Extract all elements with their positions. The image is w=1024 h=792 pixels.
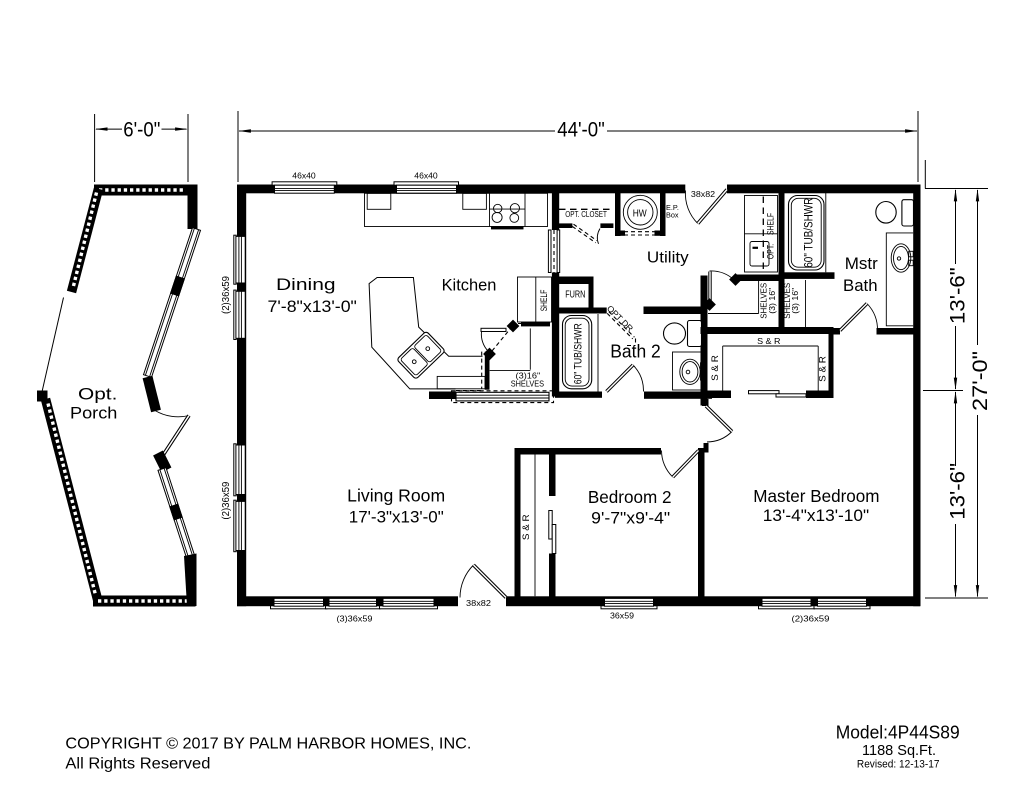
svg-text:Box: Box	[666, 211, 679, 220]
svg-text:17'-3"x13'-0": 17'-3"x13'-0"	[349, 509, 444, 527]
svg-text:SHELF: SHELF	[765, 213, 775, 235]
svg-text:38x82: 38x82	[466, 599, 492, 608]
svg-text:Mstr: Mstr	[845, 255, 879, 273]
svg-text:OPT.: OPT.	[765, 244, 775, 260]
svg-text:13'-4"x13'-10": 13'-4"x13'-10"	[763, 507, 870, 525]
svg-text:36x59: 36x59	[610, 611, 635, 620]
svg-text:Model:4P44S89: Model:4P44S89	[836, 722, 960, 742]
svg-text:(3)36x59: (3)36x59	[337, 615, 374, 624]
svg-text:46x40: 46x40	[414, 171, 438, 180]
svg-text:Bedroom 2: Bedroom 2	[588, 487, 672, 507]
svg-text:7'-8"x13'-0": 7'-8"x13'-0"	[268, 298, 357, 316]
svg-text:COPYRIGHT © 2017 BY PALM HARBO: COPYRIGHT © 2017 BY PALM HARBOR HOMES, I…	[65, 736, 471, 753]
svg-text:Opt.: Opt.	[78, 386, 117, 404]
svg-text:44'-0": 44'-0"	[557, 119, 605, 142]
svg-text:60" TUB/SHWR: 60" TUB/SHWR	[803, 198, 815, 268]
svg-text:46x40: 46x40	[292, 171, 316, 180]
svg-text:OPT. CLOSET: OPT. CLOSET	[565, 210, 607, 219]
svg-text:60" TUB/SHWR: 60" TUB/SHWR	[572, 323, 584, 384]
svg-text:HW: HW	[633, 208, 647, 220]
svg-text:Master Bedroom: Master Bedroom	[753, 486, 879, 506]
svg-text:SHELVES: SHELVES	[511, 378, 545, 388]
svg-text:SHELF: SHELF	[539, 290, 550, 312]
svg-text:1188 Sq.Ft.: 1188 Sq.Ft.	[862, 742, 936, 759]
svg-text:All Rights Reserved: All Rights Reserved	[65, 755, 210, 772]
svg-text:(2)36x59: (2)36x59	[792, 615, 831, 624]
svg-text:S & R: S & R	[817, 356, 828, 382]
svg-text:(3) 16": (3) 16"	[790, 288, 800, 314]
svg-text:FURN: FURN	[565, 290, 585, 301]
svg-text:9'-7"x9'-4": 9'-7"x9'-4"	[591, 509, 670, 527]
svg-text:13'-6": 13'-6"	[946, 463, 969, 520]
svg-text:S & R: S & R	[757, 336, 780, 346]
svg-text:(2)36x59: (2)36x59	[221, 481, 232, 519]
svg-text:Porch: Porch	[70, 405, 117, 423]
svg-text:(3) 16": (3) 16"	[767, 288, 777, 314]
svg-text:13'-6": 13'-6"	[946, 267, 969, 324]
svg-text:6'-0": 6'-0"	[123, 119, 160, 142]
svg-text:27'-0": 27'-0"	[969, 351, 992, 411]
svg-text:(2)36x59: (2)36x59	[221, 276, 232, 314]
svg-text:Living Room: Living Room	[347, 485, 445, 505]
svg-text:S & R: S & R	[521, 514, 532, 540]
svg-text:Utility: Utility	[647, 249, 689, 266]
svg-text:Revised: 12-13-17: Revised: 12-13-17	[857, 759, 940, 771]
svg-text:Bath: Bath	[843, 277, 878, 295]
svg-text:Bath 2: Bath 2	[610, 342, 661, 362]
svg-text:Kitchen: Kitchen	[442, 276, 497, 295]
svg-text:Dining: Dining	[276, 275, 336, 294]
svg-text:38x82: 38x82	[691, 190, 716, 199]
svg-text:S & R: S & R	[710, 355, 721, 381]
